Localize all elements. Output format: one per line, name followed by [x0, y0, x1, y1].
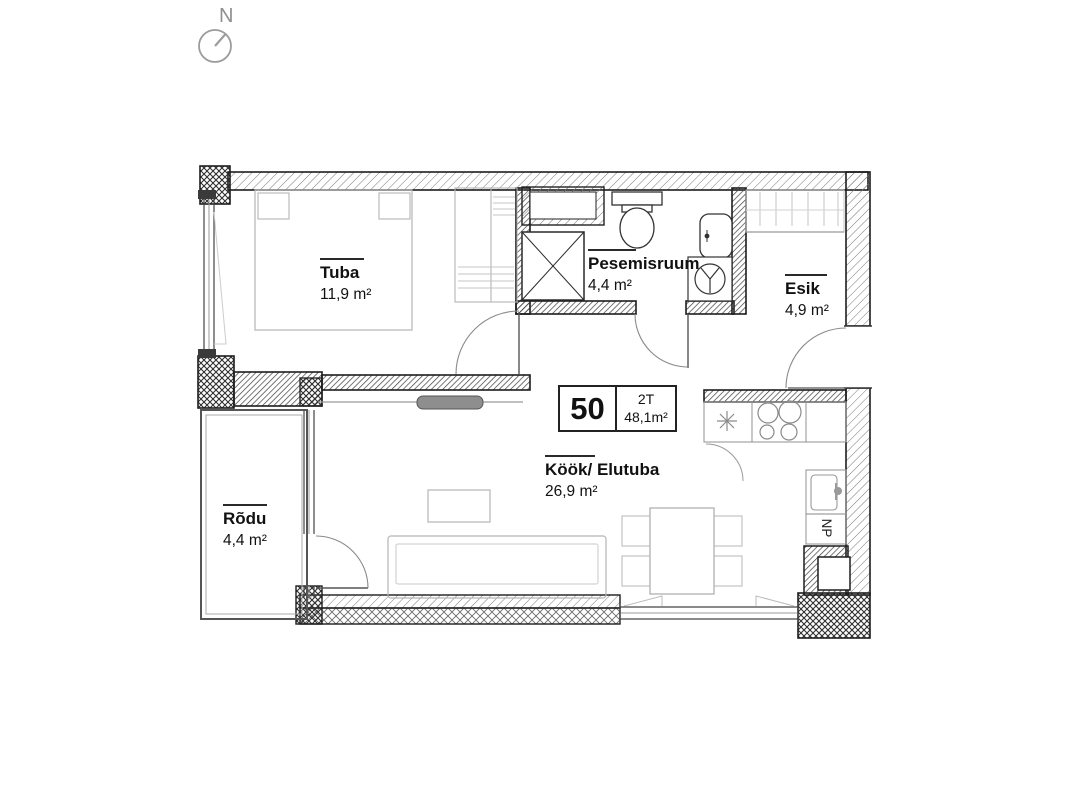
room-area: 11,9 m²	[320, 286, 371, 304]
cabinet-swing-arc	[706, 444, 743, 481]
sofa	[388, 536, 606, 598]
coffee-table	[428, 490, 490, 522]
room-area: 4,9 m²	[785, 302, 829, 320]
floor-plan-drawing	[0, 0, 1066, 800]
dining-chair	[714, 556, 742, 586]
sink-symbol	[717, 411, 737, 431]
label-overline	[545, 455, 595, 457]
balcony-door	[316, 536, 368, 588]
room-name: Pesemisruum	[588, 255, 700, 274]
room-label-rodu: Rõdu 4,4 m²	[223, 504, 267, 550]
dining-chair	[622, 556, 650, 586]
room-label-pesemisruum: Pesemisruum 4,4 m²	[588, 249, 700, 295]
pillow	[258, 193, 289, 219]
dining-chair	[714, 516, 742, 546]
room-name: Rõdu	[223, 510, 267, 529]
room-label-esik: Esik 4,9 m²	[785, 274, 829, 320]
bedroom-window	[198, 190, 226, 358]
floor-plan-page: N Tuba 11,9 m² Pesemisruum 4,4 m² Esik 4…	[0, 0, 1066, 800]
bedroom-door	[456, 311, 519, 374]
room-area: 4,4 m²	[223, 532, 267, 550]
wardrobe	[455, 188, 517, 302]
label-overline	[223, 504, 267, 506]
tv-unit	[318, 396, 523, 409]
north-indicator	[199, 30, 231, 62]
balcony-glass-wall	[304, 410, 314, 598]
stove	[758, 401, 801, 440]
room-name: Köök/ Elutuba	[545, 461, 659, 480]
label-overline	[785, 274, 827, 276]
room-name: Esik	[785, 280, 829, 299]
apartment-type: 2T	[638, 391, 654, 409]
label-overline	[320, 258, 364, 260]
washbasin	[700, 214, 732, 258]
toilet	[612, 192, 662, 248]
kitchen-corner-shaft	[804, 546, 850, 595]
hallway-closet	[746, 190, 844, 232]
ventilation-shaft	[522, 232, 584, 300]
living-room-window	[620, 596, 798, 623]
dining-table	[650, 508, 714, 594]
tv	[417, 396, 483, 409]
duct-block	[522, 187, 604, 225]
room-label-kook-elutuba: Köök/ Elutuba 26,9 m²	[545, 455, 659, 501]
room-name: Tuba	[320, 264, 371, 283]
apartment-number: 50	[560, 387, 617, 430]
label-overline	[588, 249, 636, 251]
apartment-total-area: 48,1m²	[624, 409, 668, 427]
room-area: 4,4 m²	[588, 277, 700, 295]
dining-set	[622, 508, 742, 594]
entry-door-opening	[844, 326, 872, 388]
entry-door	[786, 328, 846, 388]
dining-chair	[622, 516, 650, 546]
pillow	[379, 193, 410, 219]
room-label-tuba: Tuba 11,9 m²	[320, 258, 371, 304]
bedroom-furniture	[255, 188, 517, 330]
apartment-badge: 50 2T 48,1m²	[558, 385, 677, 432]
north-label: N	[219, 5, 241, 28]
np-annotation: NP	[813, 511, 841, 545]
bathroom-door	[635, 314, 688, 368]
room-area: 26,9 m²	[545, 483, 659, 501]
